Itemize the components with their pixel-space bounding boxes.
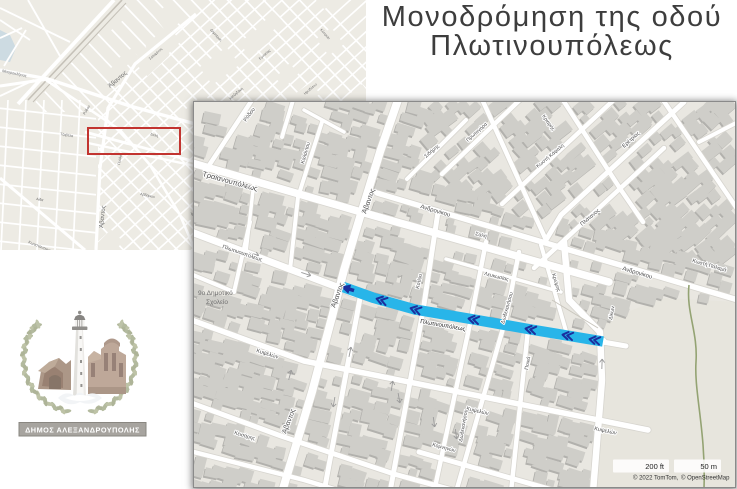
svg-text:© OpenStreetMap: © OpenStreetMap (681, 475, 730, 482)
svg-text:© 2022 TomTom,: © 2022 TomTom, (633, 475, 679, 482)
svg-text:50 m: 50 m (700, 462, 717, 471)
svg-text:9ο Δημοτικό: 9ο Δημοτικό (198, 289, 233, 297)
svg-text:200 ft: 200 ft (645, 462, 665, 471)
svg-text:Σχολείο: Σχολείο (206, 298, 228, 306)
svg-text:ΔΗΜΟΣ ΑΛΕΞΑΝΔΡΟΥΠΟΛΗΣ: ΔΗΜΟΣ ΑΛΕΞΑΝΔΡΟΥΠΟΛΗΣ (25, 425, 140, 434)
